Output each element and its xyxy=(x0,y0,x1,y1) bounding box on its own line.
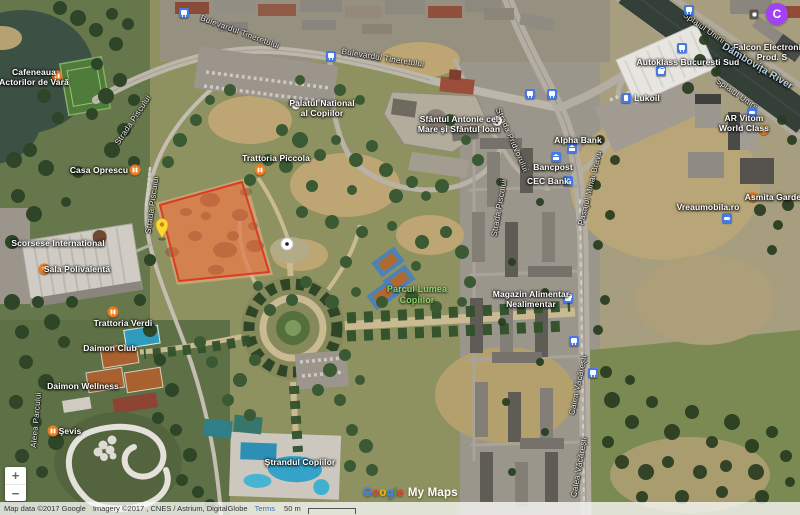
poi-label-vreaumobila[interactable]: Vreaumobila.ro xyxy=(677,202,740,212)
restaurant-icon[interactable] xyxy=(255,165,266,176)
poi-text: Scorsese International xyxy=(11,238,104,248)
poi-text: Ştrandul Copiilor xyxy=(265,457,336,467)
google-logo-letter: e xyxy=(397,487,404,499)
google-logo-letter: g xyxy=(387,487,394,499)
satellite-map[interactable] xyxy=(0,0,800,515)
attribution-bar: Map data ©2017 Google Imagery ©2017 , CN… xyxy=(0,502,800,515)
zoom-out-button[interactable]: − xyxy=(5,484,26,501)
poi-label-lukoil[interactable]: Lukoil xyxy=(634,93,660,103)
poi-text: CEC Bank xyxy=(527,176,569,186)
poi-label-strandul-copiilor[interactable]: Ştrandul Copiilor xyxy=(265,457,336,467)
poi-label-magazin-alimentar[interactable]: Magazin Alimentar Nealimentar xyxy=(493,289,569,309)
account-avatar[interactable]: C xyxy=(766,3,788,25)
poi-text: Autoklass Bucuresti Sud xyxy=(637,57,740,67)
factory-icon[interactable] xyxy=(750,10,759,19)
poi-text: Parcul Lumea xyxy=(387,284,447,295)
poi-text: Alpha Bank xyxy=(554,135,602,145)
bank-icon[interactable] xyxy=(551,152,561,162)
poi-label-trattoria-verdi[interactable]: Trattoria Verdi xyxy=(94,318,153,328)
point-marker[interactable] xyxy=(281,238,293,250)
transit-stop-icon[interactable] xyxy=(569,336,579,346)
poi-text: Trattoria Verdi xyxy=(94,318,153,328)
transit-stop-icon[interactable] xyxy=(677,43,687,53)
terms-link[interactable]: Terms xyxy=(255,504,275,513)
poi-label-sevis[interactable]: Şevis xyxy=(59,426,82,436)
poi-text: Trattoria Piccola xyxy=(242,153,310,163)
poi-label-parcul-lumea-copiilor[interactable]: Parcul Lumea Copiilor xyxy=(387,284,447,306)
poi-label-trattoria-piccola[interactable]: Trattoria Piccola xyxy=(242,153,310,163)
transit-stop-icon[interactable] xyxy=(525,89,535,99)
poi-text: Daimon Wellness xyxy=(47,381,119,391)
transit-stop-icon[interactable] xyxy=(684,5,694,15)
poi-text: Şevis xyxy=(59,426,82,436)
poi-text: Nealimentar xyxy=(493,299,569,309)
poi-text: Cafeneaua xyxy=(0,67,69,77)
restaurant-icon[interactable] xyxy=(130,165,141,176)
poi-label-alpha-bank[interactable]: Alpha Bank xyxy=(554,135,602,145)
zoom-in-button[interactable]: + xyxy=(5,467,26,484)
imagery-credit: Imagery ©2017 , CNES / Astrium, DigitalG… xyxy=(93,504,248,513)
poi-label-ar-vitom-world-class[interactable]: AR Vitom World Class xyxy=(719,113,769,133)
restaurant-icon[interactable] xyxy=(108,307,119,318)
restaurant-icon[interactable] xyxy=(48,426,59,437)
scale-bar xyxy=(308,508,356,514)
poi-text: Daimon Club xyxy=(83,343,137,353)
poi-label-sala-polivalenta[interactable]: Sala Polivalentă xyxy=(44,264,110,274)
poi-text: Casa Oprescu xyxy=(70,165,128,175)
map-data-credit: Map data ©2017 Google xyxy=(4,504,86,513)
poi-text: Bancpost xyxy=(533,162,573,172)
transit-stop-icon[interactable] xyxy=(547,89,557,99)
transit-stop-icon[interactable] xyxy=(588,368,598,378)
poi-text: Copiilor xyxy=(387,295,447,306)
my-maps-canvas[interactable]: Cafeneaua Actorilor de Vară Casa Oprescu… xyxy=(0,0,800,515)
shopping-icon[interactable] xyxy=(656,66,666,76)
poi-text: Falcon Electronics xyxy=(733,42,800,52)
transit-stop-icon[interactable] xyxy=(179,8,189,18)
poi-text: Vreaumobila.ro xyxy=(677,202,740,212)
poi-label-sfantul-antonie[interactable]: Sfântul Antonie cel Mare şi Sfântul Ioan xyxy=(418,114,500,134)
poi-text: Sfântul Antonie cel xyxy=(418,114,500,124)
poi-label-palatul-copiilor[interactable]: Palatul National al Copiilor xyxy=(289,98,354,118)
poi-text: Sala Polivalentă xyxy=(44,264,110,274)
poi-label-daimon-club[interactable]: Daimon Club xyxy=(83,343,137,353)
poi-text: Mare şi Sfântul Ioan xyxy=(418,124,500,134)
poi-label-daimon-wellness[interactable]: Daimon Wellness xyxy=(47,381,119,391)
poi-text: AR Vitom xyxy=(719,113,769,123)
poi-label-bancpost[interactable]: Bancpost xyxy=(533,162,573,172)
poi-label-autoklass[interactable]: Autoklass Bucuresti Sud xyxy=(637,57,740,67)
google-logo-letter: o xyxy=(379,487,386,499)
poi-text: Lukoil xyxy=(634,93,660,103)
poi-text: World Class xyxy=(719,123,769,133)
poi-text: Magazin Alimentar xyxy=(493,289,569,299)
poi-text: Asmita Gardens xyxy=(745,192,800,202)
poi-text: al Copiilor xyxy=(289,108,354,118)
google-logo-letter: G xyxy=(363,487,372,499)
zoom-control: + − xyxy=(5,467,26,501)
poi-label-asmita-gardens[interactable]: Asmita Gardens xyxy=(745,192,800,202)
poi-text: Actorilor de Vară xyxy=(0,77,69,87)
poi-label-cec-bank[interactable]: CEC Bank xyxy=(527,176,569,186)
poi-label-casa-oprescu[interactable]: Casa Oprescu xyxy=(70,165,128,175)
google-my-maps-watermark: GoogleMy Maps xyxy=(363,486,458,500)
car-dealer-icon[interactable] xyxy=(722,213,732,223)
poi-label-scorsese-international[interactable]: Scorsese International xyxy=(11,238,104,248)
scale-label: 50 m xyxy=(284,504,301,513)
my-maps-text: My Maps xyxy=(408,487,458,499)
transit-stop-icon[interactable] xyxy=(326,51,336,61)
poi-label-cafeneaua-actorilor[interactable]: Cafeneaua Actorilor de Vară xyxy=(0,67,69,87)
poi-text: Palatul National xyxy=(289,98,354,108)
gas-station-icon[interactable] xyxy=(621,93,631,103)
